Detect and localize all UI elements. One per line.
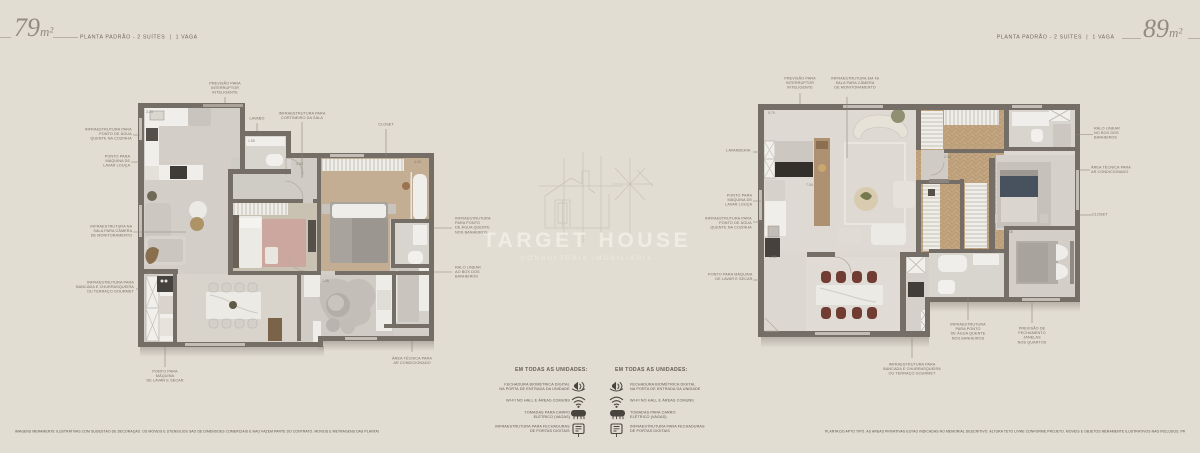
svg-text:TARGET HOUSE: TARGET HOUSE <box>483 229 691 252</box>
svg-text:2.84: 2.84 <box>296 162 303 166</box>
svg-text:1.55: 1.55 <box>248 139 255 143</box>
svg-text:1.41: 1.41 <box>146 271 153 275</box>
svg-text:2.34: 2.34 <box>944 155 951 159</box>
svg-text:7.04: 7.04 <box>806 183 813 187</box>
svg-text:1.05: 1.05 <box>322 279 329 283</box>
svg-text:CONSULTORIA IMOBILIARIA: CONSULTORIA IMOBILIARIA <box>521 255 654 262</box>
svg-text:2.36: 2.36 <box>993 250 1000 254</box>
svg-text:4.05: 4.05 <box>414 160 421 164</box>
svg-text:3.23: 3.23 <box>146 110 153 114</box>
svg-text:5.70: 5.70 <box>768 111 775 115</box>
svg-text:2.80: 2.80 <box>770 255 777 259</box>
svg-text:3.46: 3.46 <box>1006 230 1013 234</box>
